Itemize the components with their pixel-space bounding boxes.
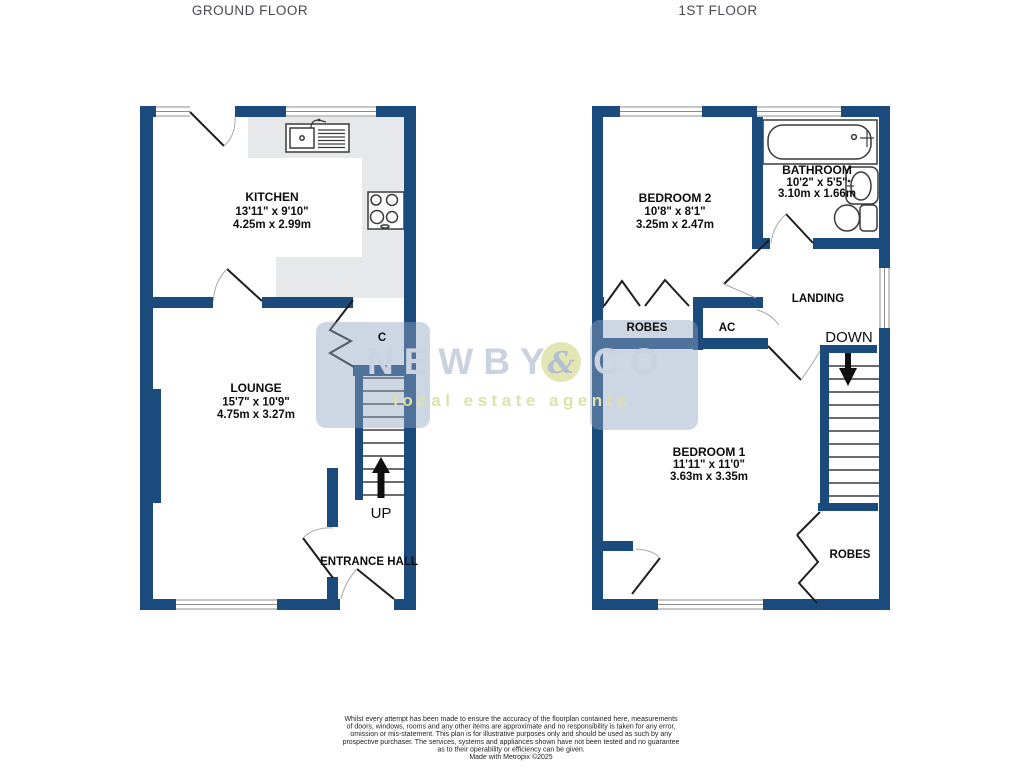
hob-icon [368, 192, 404, 229]
disclaimer-line: of doors, windows, rooms and any other i… [347, 724, 676, 731]
kitchen-label: KITCHEN [245, 190, 298, 204]
window [156, 106, 190, 117]
bedroom2-label: BEDROOM 2 [639, 191, 712, 205]
kitchen-metric: 4.25m x 2.99m [233, 219, 311, 231]
floorplan-page: KITCHEN 13'11" x 9'10" 4.25m x 2.99m LOU… [0, 0, 1024, 768]
down-label: DOWN [825, 329, 873, 346]
lounge-imperial: 15'7" x 10'9" [222, 397, 290, 409]
window [176, 599, 277, 610]
disclaimer-line: as to their operability or efficiency ca… [437, 746, 584, 753]
robes2-label: ROBES [627, 322, 668, 334]
disclaimer-credit: Made with Metropix ©2025 [469, 753, 552, 761]
kitchen-imperial: 13'11" x 9'10" [235, 206, 308, 218]
watermark-tagline: local estate agents [393, 391, 631, 410]
first-floor-title: 1ST FLOOR [678, 3, 757, 18]
watermark-name: NEWBY [367, 341, 555, 382]
landing-label: LANDING [792, 293, 844, 305]
disclaimer-line: prospective purchaser. The services, sys… [343, 739, 680, 746]
lounge-metric: 4.75m x 3.27m [217, 409, 295, 421]
window [658, 599, 763, 610]
toilet-icon [835, 205, 878, 231]
robes1-label: ROBES [830, 549, 871, 561]
ground-floor-title: GROUND FLOOR [192, 3, 308, 18]
entrance-hall-label: ENTRANCE HALL [320, 556, 418, 568]
bedroom1-metric: 3.63m x 3.35m [670, 471, 748, 483]
up-label: UP [371, 505, 392, 522]
ampersand-glyph: & [547, 346, 574, 381]
floorplan-svg: KITCHEN 13'11" x 9'10" 4.25m x 2.99m LOU… [0, 0, 1024, 768]
bathroom-label: BATHROOM [782, 163, 852, 177]
bedroom2-imperial: 10'8" x 8'1" [644, 206, 705, 218]
watermark-logo: NEWBY & CO local estate agents [367, 341, 669, 410]
disclaimer-line: Whilst every attempt has been made to en… [344, 716, 678, 723]
disclaimer-line: omission or mis-statement. This plan is … [350, 731, 672, 738]
bedroom2-metric: 3.25m x 2.47m [636, 219, 714, 231]
sink-icon [286, 119, 349, 152]
window [879, 268, 890, 328]
bedroom1-label: BEDROOM 1 [673, 445, 746, 459]
bathroom-metric: 3.10m x 1.66m [778, 188, 856, 200]
watermark-co: CO [593, 341, 669, 382]
window [620, 106, 702, 117]
ac-label: AC [719, 322, 736, 334]
disclaimer: Whilst every attempt has been made to en… [343, 716, 680, 761]
window [286, 106, 376, 117]
bath-icon [763, 120, 877, 164]
window [757, 106, 841, 117]
lounge-label: LOUNGE [230, 381, 281, 395]
bedroom1-imperial: 11'11" x 11'0" [673, 459, 745, 471]
